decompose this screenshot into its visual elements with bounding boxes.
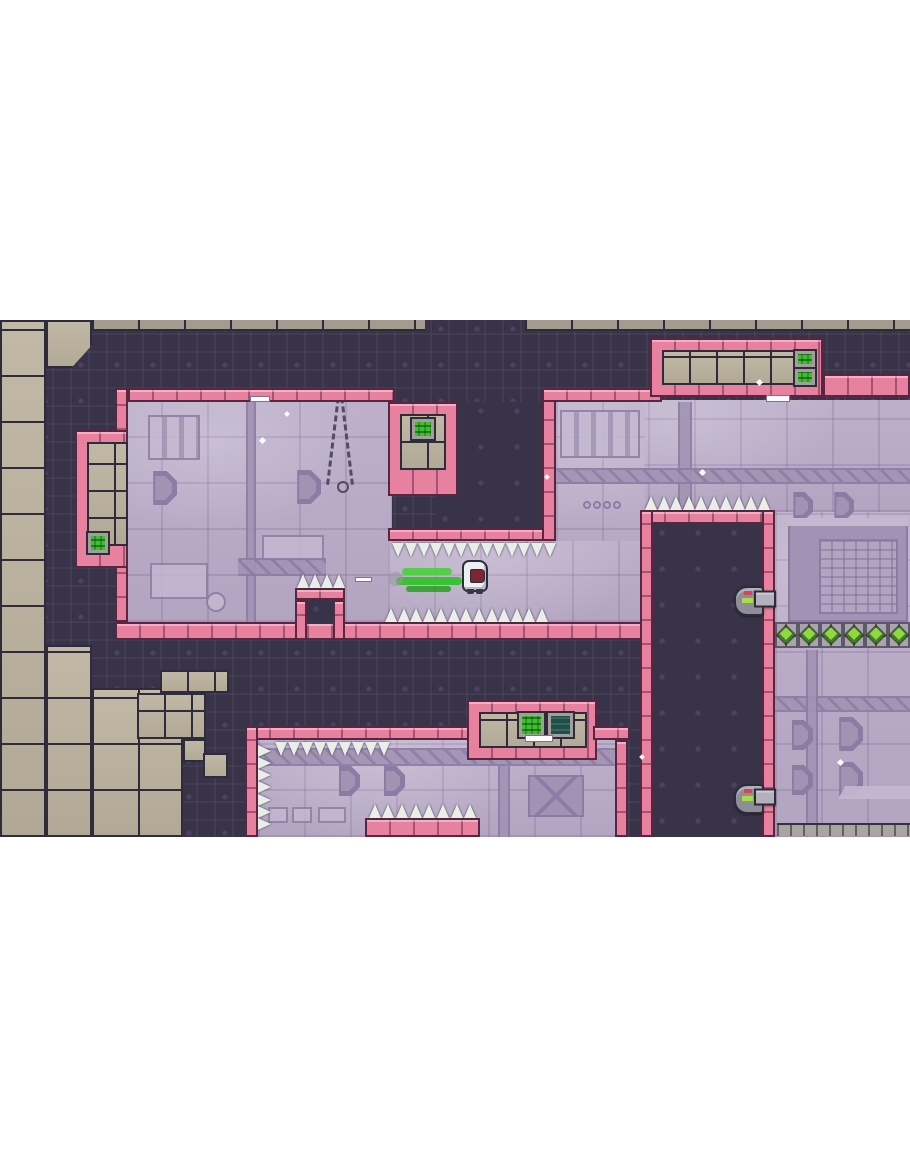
turret-cannon: [734, 784, 776, 810]
chain-link-line: [326, 388, 341, 484]
spike: [398, 608, 410, 622]
spike: [448, 608, 460, 622]
light-strip: [525, 735, 553, 742]
spike: [339, 742, 351, 756]
spike: [258, 769, 271, 781]
spike: [473, 608, 485, 622]
rivet: [593, 501, 601, 509]
turret-green-light: [742, 598, 753, 603]
bottom-room-border-seg: [593, 726, 630, 740]
turret-red-light: [744, 591, 752, 595]
spike: [523, 608, 535, 622]
spike: [333, 574, 345, 588]
gauge-dial: [206, 592, 226, 612]
panel-square: [292, 807, 312, 823]
room2-top-border: [542, 388, 662, 402]
turret-cannon: [734, 586, 776, 612]
spike: [745, 496, 757, 510]
pedestal-opening: [307, 600, 333, 624]
spike: [410, 608, 422, 622]
light-strip: [355, 577, 372, 582]
hanging-chain: [326, 388, 352, 493]
vent-panel: [148, 415, 200, 460]
spike: [645, 496, 657, 510]
light-strip: [250, 396, 270, 402]
tan-tile-group: [662, 350, 811, 385]
spike: [435, 608, 447, 622]
rivet-row: [583, 500, 621, 510]
gem-block: [798, 622, 821, 648]
spike: [258, 818, 271, 830]
spike: [498, 608, 510, 622]
spike: [396, 804, 408, 818]
gem-block: [888, 622, 910, 648]
gem-icon: [846, 627, 862, 643]
trail-streak: [396, 577, 462, 585]
spike: [683, 496, 695, 510]
spike: [536, 608, 548, 622]
pipe-vertical: [498, 766, 510, 837]
spike: [518, 543, 530, 557]
dash-trail: [396, 566, 468, 594]
player-leg: [467, 589, 474, 594]
chain-hook: [337, 481, 349, 493]
spike: [314, 742, 326, 756]
spike-row: [392, 541, 556, 557]
spike: [486, 608, 498, 622]
tower-left-wall: [640, 510, 653, 837]
room2-left-wall: [542, 388, 556, 541]
terminal-screen-green: [88, 533, 108, 553]
bottom-room-left-wall: [245, 726, 258, 837]
tile-strip: [525, 320, 910, 331]
floor-spike-base: [365, 818, 480, 837]
spike-row: [297, 574, 343, 588]
spike: [309, 574, 321, 588]
gray-block-row: [777, 823, 910, 836]
spike: [301, 742, 313, 756]
player-visor: [470, 569, 485, 583]
spike: [326, 742, 338, 756]
spike: [443, 543, 455, 557]
bottom-room-top-border: [245, 726, 470, 740]
spike: [258, 794, 271, 806]
spike: [451, 804, 463, 818]
trail-streak: [402, 568, 452, 575]
spike: [708, 496, 720, 510]
tower-top-border: [640, 510, 775, 524]
spike: [481, 543, 493, 557]
pipe-vertical: [678, 402, 692, 510]
panel-square: [150, 563, 208, 599]
spike: [460, 608, 472, 622]
spike-row: [368, 802, 477, 818]
turret-green-light: [742, 796, 753, 801]
gem-icon: [891, 627, 907, 643]
terminal-screen-green: [519, 713, 544, 737]
spike: [297, 574, 309, 588]
spike: [378, 742, 390, 756]
tan-tile-group: [137, 693, 206, 739]
pipe-horizontal: [775, 696, 910, 712]
spike: [464, 804, 476, 818]
terminal-screen-dark: [548, 713, 573, 737]
gem-block: [775, 622, 798, 648]
terminal-screen-green: [795, 351, 815, 367]
spike: [352, 742, 364, 756]
gem-block: [820, 622, 843, 648]
rivet: [613, 501, 621, 509]
terminal-screen-green: [795, 369, 815, 385]
top-right-border: [823, 374, 910, 397]
pedestal-leg: [333, 600, 345, 640]
spike: [437, 804, 449, 818]
tan-block: [46, 645, 92, 837]
spike: [493, 543, 505, 557]
turret-red-light: [744, 789, 752, 793]
tan-tile-group: [160, 670, 229, 693]
gem-block: [865, 622, 888, 648]
spike: [410, 804, 422, 818]
spike-row: [645, 496, 770, 510]
panel-square: [318, 807, 346, 823]
spike: [758, 496, 770, 510]
spike: [382, 804, 394, 818]
spike: [258, 757, 271, 769]
spike: [506, 543, 518, 557]
spike: [670, 496, 682, 510]
gem-icon: [868, 627, 884, 643]
spike: [288, 742, 300, 756]
player-leg: [476, 589, 483, 594]
hatch-panel: [528, 775, 584, 817]
spike: [418, 543, 430, 557]
pipe-horizontal: [556, 468, 910, 484]
tan-block: [46, 320, 92, 368]
spike: [369, 804, 381, 818]
rivet: [583, 501, 591, 509]
spike: [544, 543, 556, 557]
spike: [258, 781, 271, 793]
corridor-floor: [115, 622, 653, 640]
ledge: [838, 786, 910, 799]
spike-row: [258, 745, 273, 830]
spike: [321, 574, 333, 588]
pedestal-leg: [295, 600, 307, 640]
tan-block: [0, 320, 46, 837]
tile-strip: [92, 320, 425, 331]
rivet: [603, 501, 611, 509]
spike: [423, 608, 435, 622]
gem-block-row: [775, 622, 910, 648]
spike: [275, 742, 287, 756]
terminal-screen-green: [412, 419, 434, 439]
spike: [258, 806, 271, 818]
corridor-ceiling-bar: [388, 528, 556, 541]
spike: [385, 608, 397, 622]
tan-tile-group: [87, 442, 128, 546]
spike: [430, 543, 442, 557]
spike: [511, 608, 523, 622]
pedestal-top: [295, 588, 345, 600]
bottom-room-right-wall: [615, 740, 628, 837]
spike: [365, 742, 377, 756]
gem-block: [843, 622, 866, 648]
gem-icon: [823, 627, 839, 643]
spike: [455, 543, 467, 557]
spike: [733, 496, 745, 510]
trail-streak: [406, 586, 451, 592]
pipe-vertical: [246, 402, 256, 622]
tan-tile-group: [203, 753, 228, 778]
spike-row: [385, 606, 548, 622]
spike: [531, 543, 543, 557]
turret-barrel: [754, 789, 776, 806]
spike-row: [275, 740, 390, 756]
spike: [258, 745, 271, 757]
spike: [392, 543, 404, 557]
gem-icon: [778, 627, 794, 643]
spike: [695, 496, 707, 510]
machine-cube: [788, 518, 908, 622]
spike: [468, 543, 480, 557]
game-viewport[interactable]: [0, 320, 910, 837]
spike: [658, 496, 670, 510]
spike: [720, 496, 732, 510]
turret-barrel: [754, 591, 776, 608]
chain-link-line: [339, 388, 354, 484]
gem-icon: [801, 627, 817, 643]
game-window: [0, 0, 910, 1155]
machine-cube-panel: [819, 539, 898, 614]
light-strip: [766, 395, 790, 402]
spike: [423, 804, 435, 818]
vent-panel: [560, 410, 640, 458]
trail-puff: [388, 572, 403, 586]
spike: [405, 543, 417, 557]
player-character: [462, 560, 488, 592]
